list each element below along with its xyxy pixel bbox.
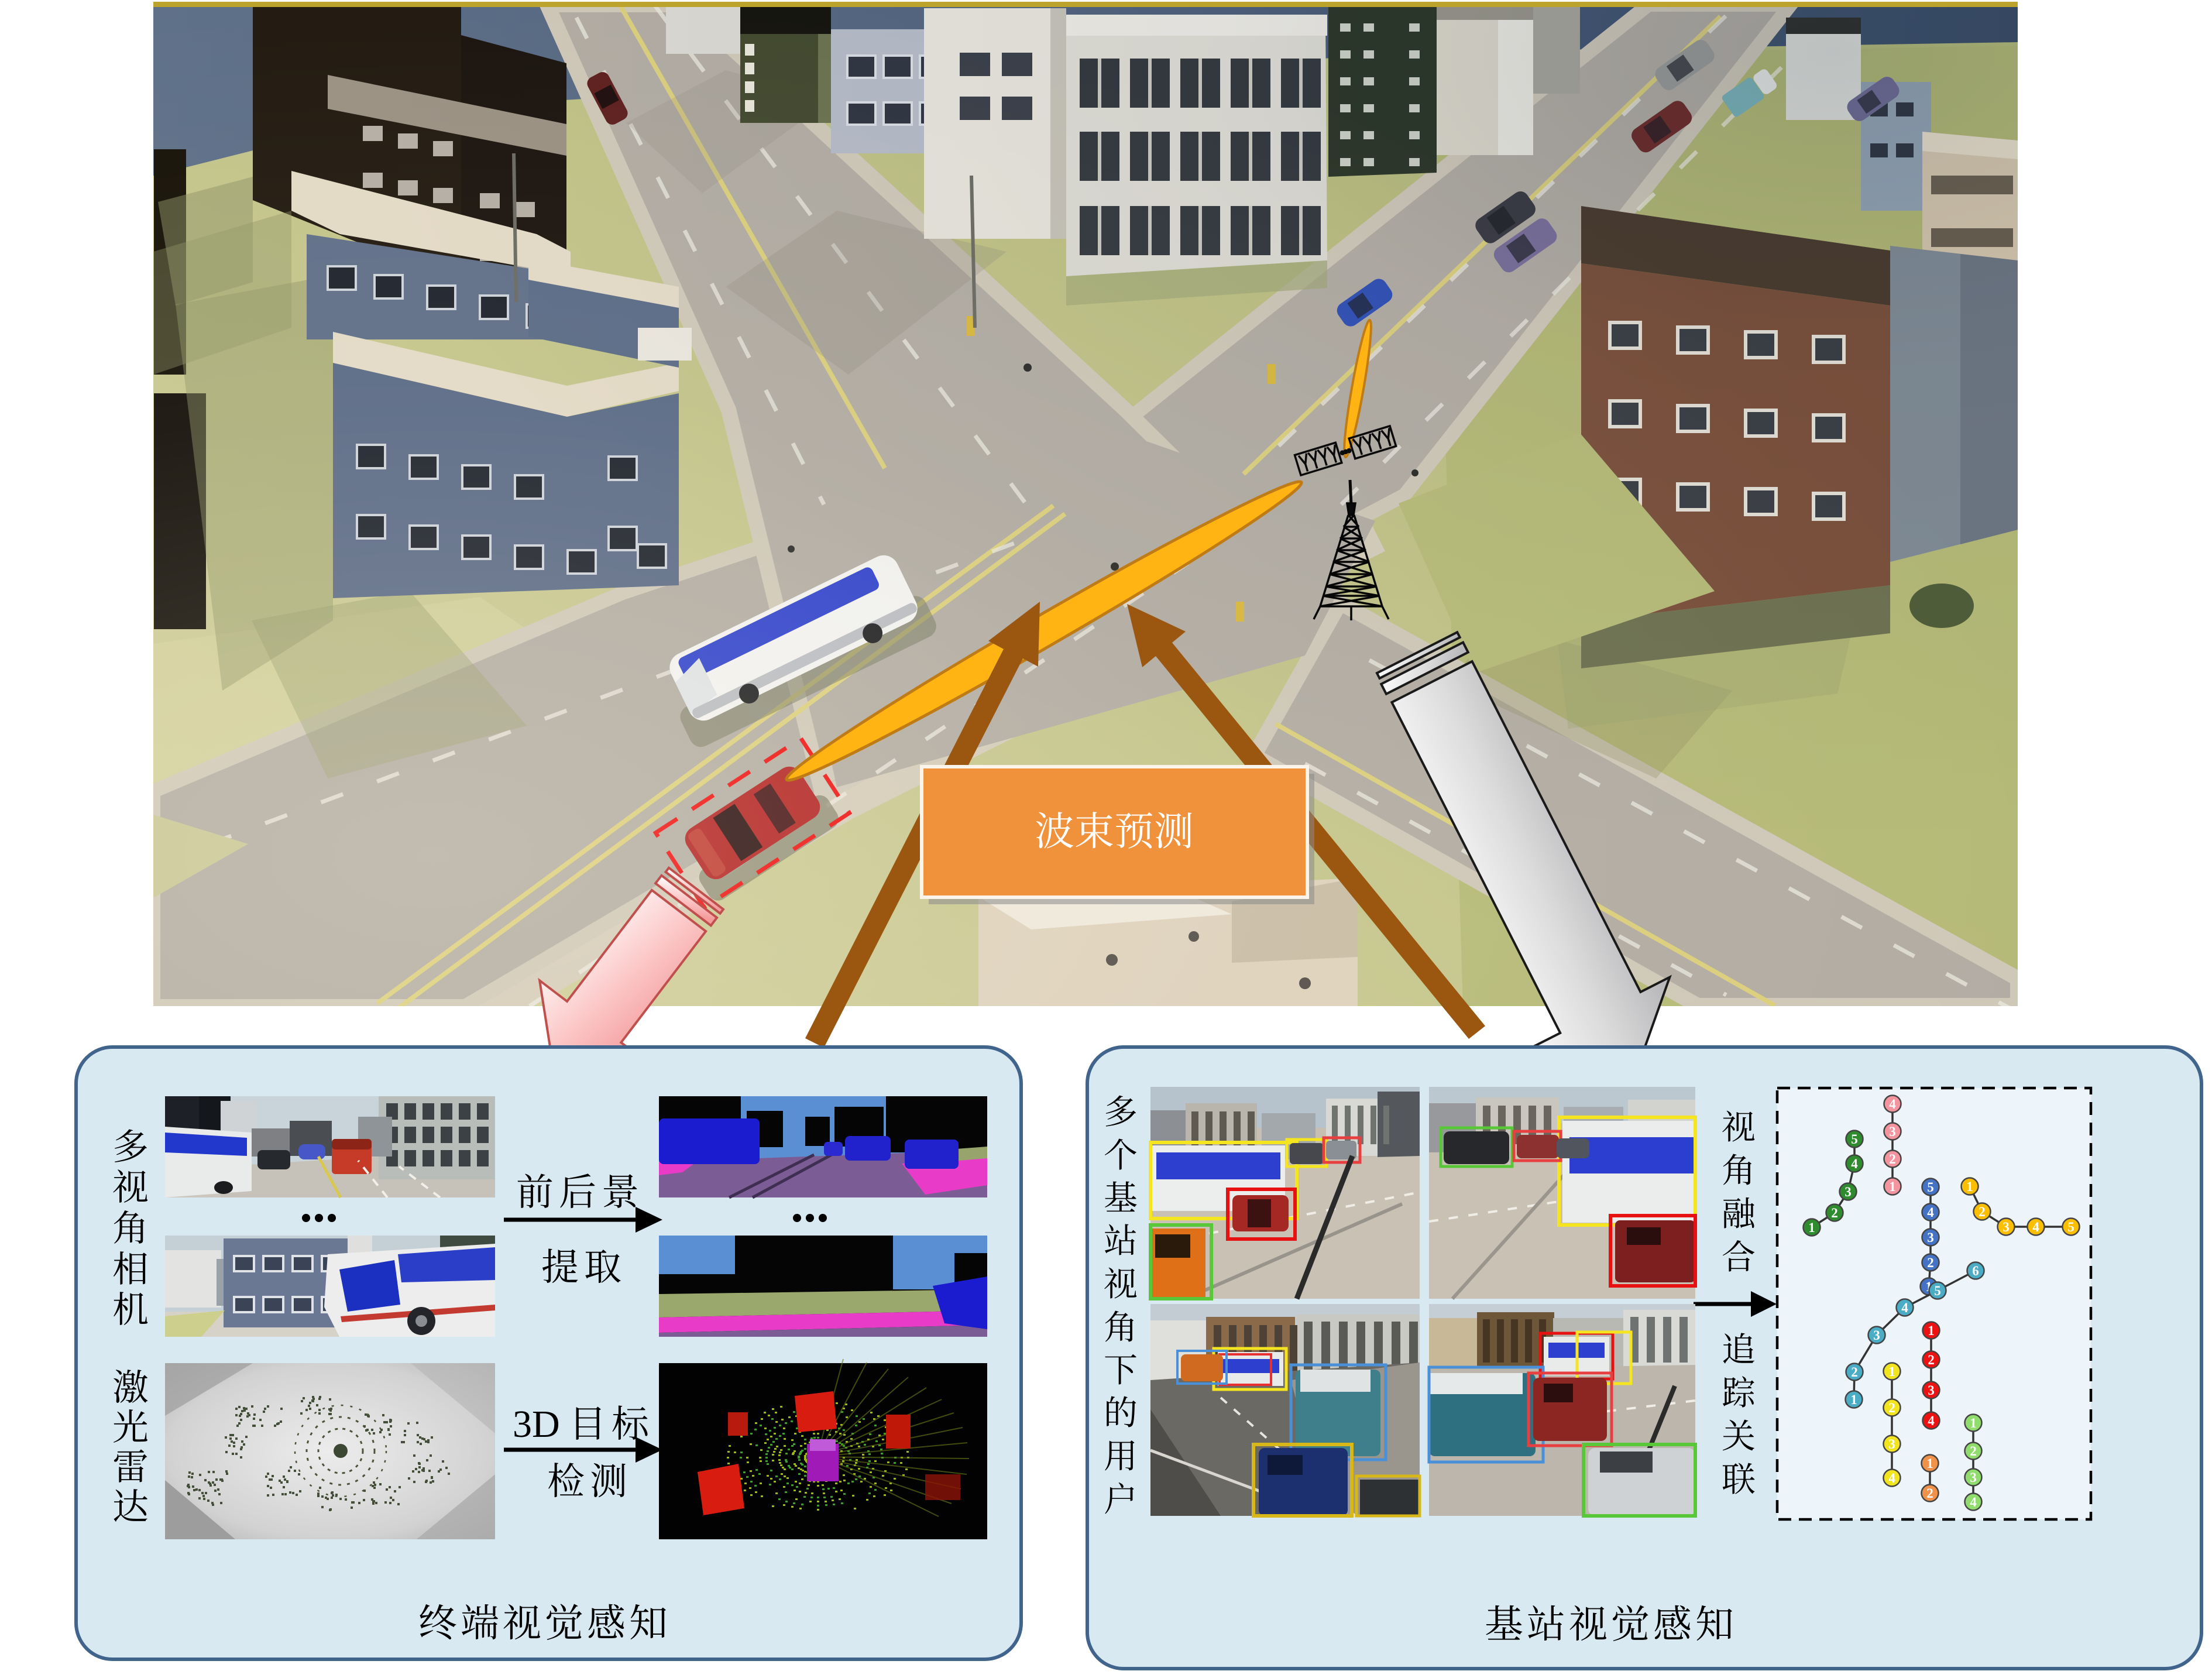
svg-text:4: 4 [1927,1205,1934,1220]
svg-text:2: 2 [1979,1205,1986,1219]
svg-text:1: 1 [1926,1456,1933,1471]
svg-text:3: 3 [1928,1383,1935,1398]
svg-text:2: 2 [1928,1353,1935,1367]
svg-text:3: 3 [1889,1124,1896,1139]
svg-text:5: 5 [2067,1220,2074,1234]
svg-text:2: 2 [1888,1401,1895,1415]
svg-text:2: 2 [1851,1365,1858,1380]
svg-text:1: 1 [1889,1179,1896,1194]
svg-text:4: 4 [1970,1495,1977,1509]
svg-text:1: 1 [1850,1392,1857,1407]
svg-text:3: 3 [2003,1220,2010,1234]
svg-text:4: 4 [2032,1220,2039,1234]
svg-text:3: 3 [1888,1437,1895,1451]
svg-text:3: 3 [1970,1470,1977,1485]
svg-text:5: 5 [1927,1180,1934,1195]
svg-text:3D: 3D [513,1403,560,1446]
svg-text:6: 6 [1972,1264,1979,1278]
svg-text:1: 1 [1888,1364,1895,1379]
svg-text:2: 2 [1927,1255,1934,1270]
svg-text:1: 1 [1928,1323,1935,1338]
svg-text:3: 3 [1873,1328,1880,1343]
svg-text:2: 2 [1889,1152,1896,1166]
svg-text:4: 4 [1851,1157,1858,1171]
svg-text:3: 3 [1927,1230,1934,1245]
svg-text:4: 4 [1901,1300,1908,1315]
svg-text:4: 4 [1928,1413,1935,1428]
svg-text:2: 2 [1926,1486,1933,1501]
svg-text:5: 5 [1851,1132,1858,1147]
svg-text:2: 2 [1831,1206,1838,1220]
svg-text:3: 3 [1845,1185,1852,1199]
svg-text:1: 1 [1808,1220,1815,1235]
svg-text:5: 5 [1934,1284,1941,1298]
svg-text:2: 2 [1970,1444,1977,1459]
svg-text:4: 4 [1888,1471,1895,1485]
svg-text:1: 1 [1966,1179,1973,1194]
svg-text:1: 1 [1970,1416,1977,1430]
svg-text:4: 4 [1889,1097,1896,1111]
